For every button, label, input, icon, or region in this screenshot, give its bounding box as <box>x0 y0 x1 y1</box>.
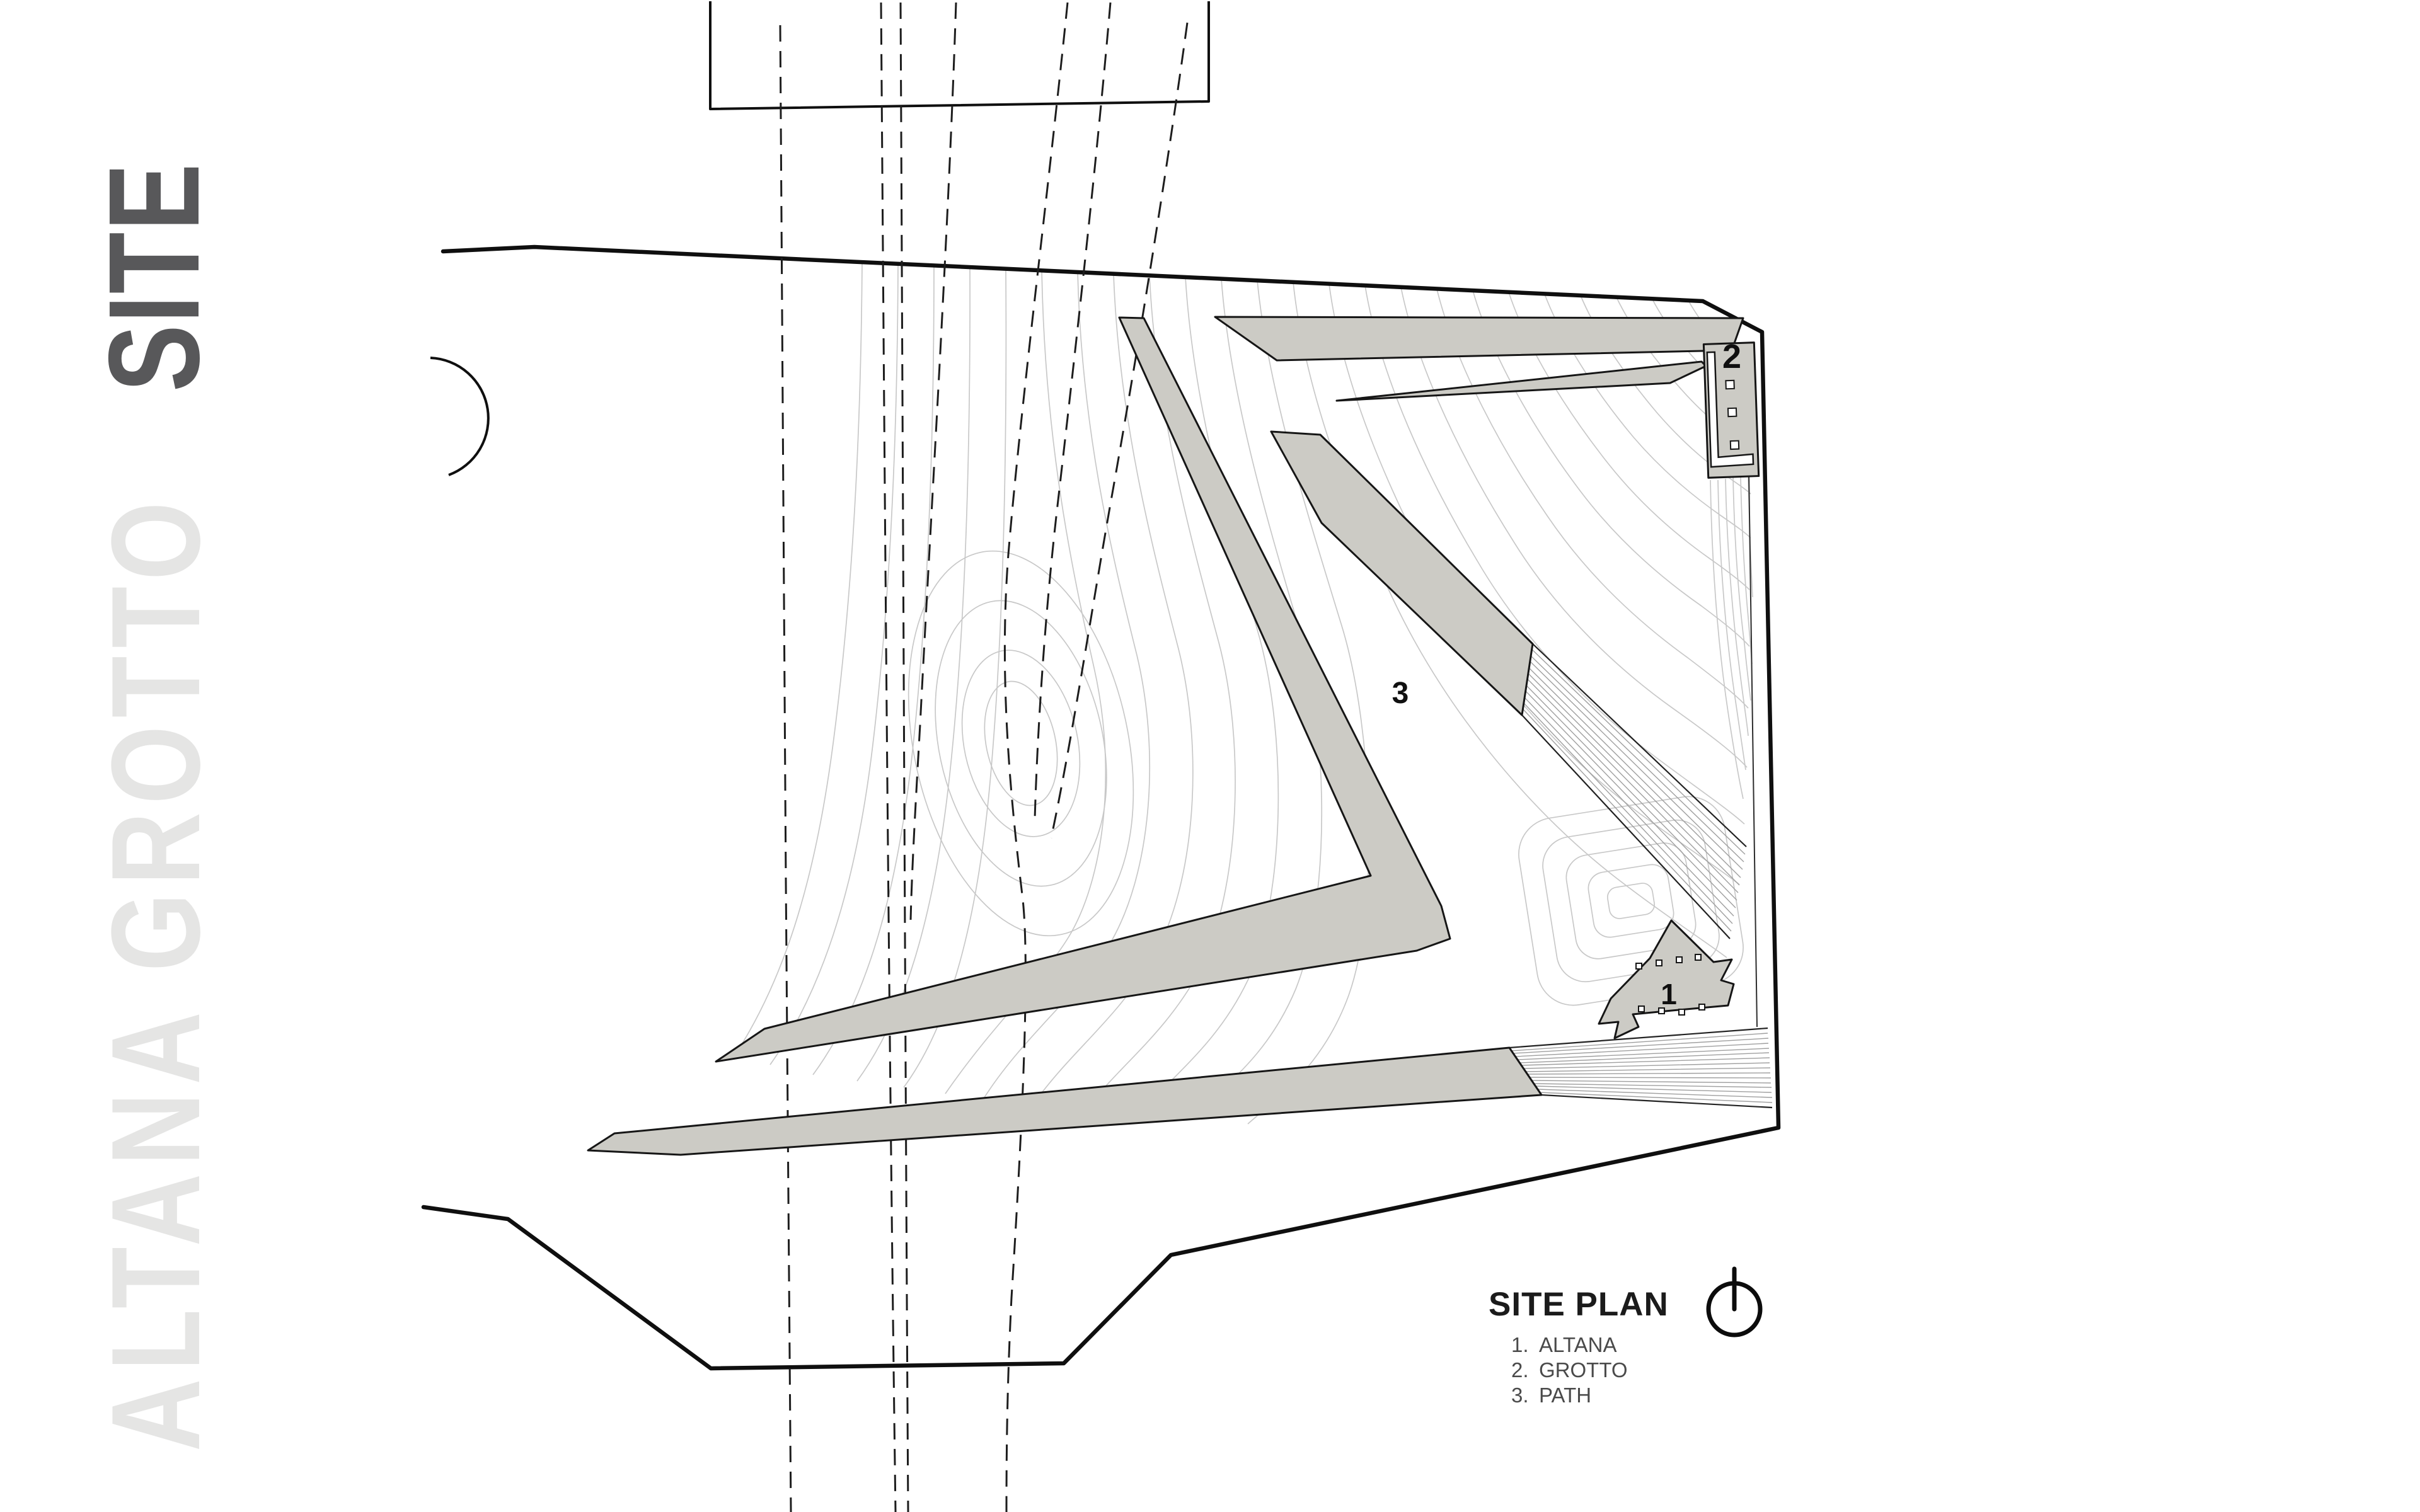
legend-item-number: 2. <box>1511 1358 1539 1383</box>
legend-item-number: 3. <box>1511 1383 1539 1408</box>
building-outline <box>710 1 1209 109</box>
left-arc-feature <box>430 358 488 475</box>
site-boundary <box>423 247 1778 1368</box>
hill-contour-loops <box>875 530 1166 956</box>
path-wedge-top <box>1215 317 1743 360</box>
drawing-sheet: SITE ALTANA GROTTO <box>0 0 2420 1512</box>
slope-contours-right <box>1710 476 1753 799</box>
legend-item-path: 3.PATH <box>1511 1383 1669 1408</box>
site-plan-drawing: 2 3 1 <box>0 0 2420 1512</box>
legend-item-altana: 1.ALTANA <box>1511 1332 1669 1358</box>
label-path: 3 <box>1392 677 1409 710</box>
legend-item-label: PATH <box>1539 1383 1591 1407</box>
dashed-survey-lines <box>780 3 1187 1512</box>
legend-item-label: GROTTO <box>1539 1358 1628 1382</box>
legend-item-grotto: 2.GROTTO <box>1511 1358 1669 1383</box>
path-wedge-small <box>1337 362 1706 401</box>
legend-item-number: 1. <box>1511 1332 1539 1358</box>
legend-list: 1.ALTANA 2.GROTTO 3.PATH <box>1511 1332 1669 1408</box>
north-arrow-icon <box>1702 1265 1767 1338</box>
hatch-band-bottom <box>1509 1028 1772 1108</box>
label-altana: 1 <box>1661 978 1677 1011</box>
label-grotto: 2 <box>1722 338 1741 375</box>
terrace-steps <box>1522 644 1746 939</box>
legend-heading: SITE PLAN <box>1489 1285 1669 1324</box>
legend: SITE PLAN 1.ALTANA 2.GROTTO 3.PATH <box>1489 1285 1669 1408</box>
legend-item-label: ALTANA <box>1539 1333 1616 1356</box>
path-wedge-bottom <box>588 1048 1541 1155</box>
path-chevron <box>716 318 1450 1062</box>
contour-lines <box>736 262 1751 1124</box>
path-network <box>588 317 1743 1155</box>
